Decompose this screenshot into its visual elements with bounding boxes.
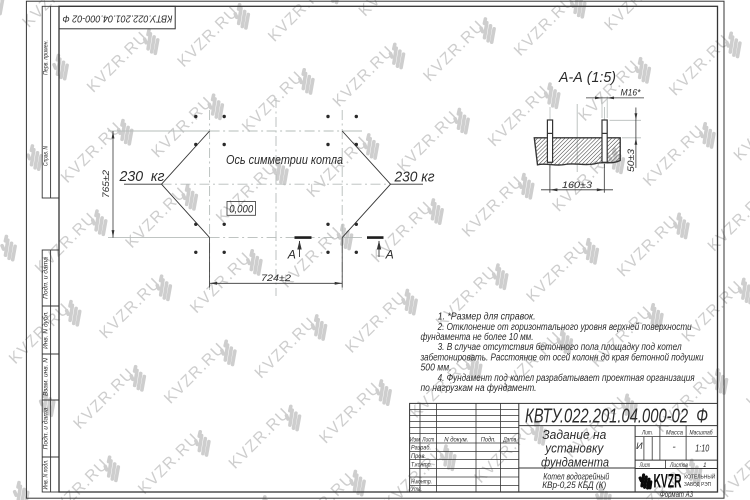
- svg-text:фундамента не более 10 мм.: фундамента не более 10 мм.: [421, 331, 534, 343]
- svg-text:Изм: Изм: [410, 437, 421, 444]
- svg-text:Лист: Лист: [639, 462, 651, 469]
- svg-text:Разраб.: Разраб.: [411, 444, 431, 452]
- svg-text:Инв. N подл.: Инв. N подл.: [42, 460, 50, 490]
- svg-text:Масса: Масса: [666, 429, 684, 436]
- svg-text:724±2: 724±2: [261, 273, 292, 284]
- svg-text:Подп. и дата: Подп. и дата: [42, 256, 50, 299]
- svg-text:по нагрузкам на фундамент.: по нагрузкам на фундамент.: [421, 382, 537, 394]
- svg-text:ЗАВОД РЭП: ЗАВОД РЭП: [684, 482, 711, 488]
- svg-text:забетонировать. Расстояние от: забетонировать. Расстояние от осей колон…: [420, 351, 704, 363]
- svg-text:Ось симметрии котла: Ось симметрии котла: [226, 152, 343, 167]
- svg-text:КВТУ.022.201.04.000-02 Ф: КВТУ.022.201.04.000-02 Ф: [62, 12, 172, 23]
- svg-text:N докум.: N докум.: [444, 437, 468, 444]
- svg-text:Дата: Дата: [502, 437, 516, 444]
- svg-text:А-А (1:5): А-А (1:5): [558, 69, 616, 86]
- svg-text:1:10: 1:10: [695, 443, 709, 455]
- svg-text:Н.контр.: Н.контр.: [411, 479, 432, 486]
- svg-text:Инв. N дубл.: Инв. N дубл.: [42, 311, 50, 349]
- svg-text:160±3: 160±3: [562, 180, 593, 191]
- svg-text:Масштаб: Масштаб: [690, 429, 713, 436]
- svg-text:КОТЕЛЬНЫЙ: КОТЕЛЬНЫЙ: [684, 473, 715, 481]
- svg-text:КВТУ.022.201.04.000-02 Ф: КВТУ.022.201.04.000-02 Ф: [525, 405, 708, 427]
- svg-text:Пров.: Пров.: [411, 453, 426, 460]
- svg-text:А: А: [287, 248, 296, 262]
- svg-text:установку: установку: [544, 441, 604, 456]
- svg-text:Т.контр.: Т.контр.: [411, 461, 432, 468]
- svg-text:КВр-0,25 КБД (К): КВр-0,25 КБД (К): [542, 480, 606, 490]
- svg-text:Утв.: Утв.: [410, 486, 422, 493]
- svg-text:230 кг: 230 кг: [119, 168, 166, 185]
- svg-text:Подп.: Подп.: [481, 437, 496, 444]
- svg-text:А: А: [385, 248, 394, 262]
- svg-text:И: И: [636, 441, 643, 451]
- svg-text:Лит.: Лит.: [641, 429, 653, 436]
- svg-text:50±3: 50±3: [626, 148, 637, 172]
- svg-text:3. В случае отсутствия бетонно: 3. В случае отсутствия бетонного пола пл…: [438, 341, 682, 353]
- svg-text:Формат А3: Формат А3: [660, 490, 693, 499]
- svg-text:Листов: Листов: [669, 462, 688, 469]
- svg-text:1: 1: [703, 462, 707, 469]
- svg-text:500 мм.: 500 мм.: [421, 363, 452, 374]
- svg-text:Перв. примен.: Перв. примен.: [43, 40, 50, 75]
- svg-text:1. *Размер для справок.: 1. *Размер для справок.: [438, 311, 536, 322]
- svg-text:230 кг: 230 кг: [394, 169, 435, 186]
- svg-text:765±2: 765±2: [101, 169, 112, 198]
- svg-text:Подп. и дата: Подп. и дата: [42, 407, 50, 450]
- svg-text:фундамента: фундамента: [541, 455, 609, 470]
- svg-text:0,000: 0,000: [229, 203, 254, 215]
- svg-text:Взам. инв. N: Взам. инв. N: [43, 358, 50, 396]
- svg-text:Справ. N: Справ. N: [43, 146, 50, 166]
- svg-text:Лист: Лист: [422, 437, 435, 444]
- svg-text:М16*: М16*: [621, 88, 641, 98]
- svg-text:4. Фундамент под котел разраба: 4. Фундамент под котел разрабатывает про…: [438, 372, 696, 384]
